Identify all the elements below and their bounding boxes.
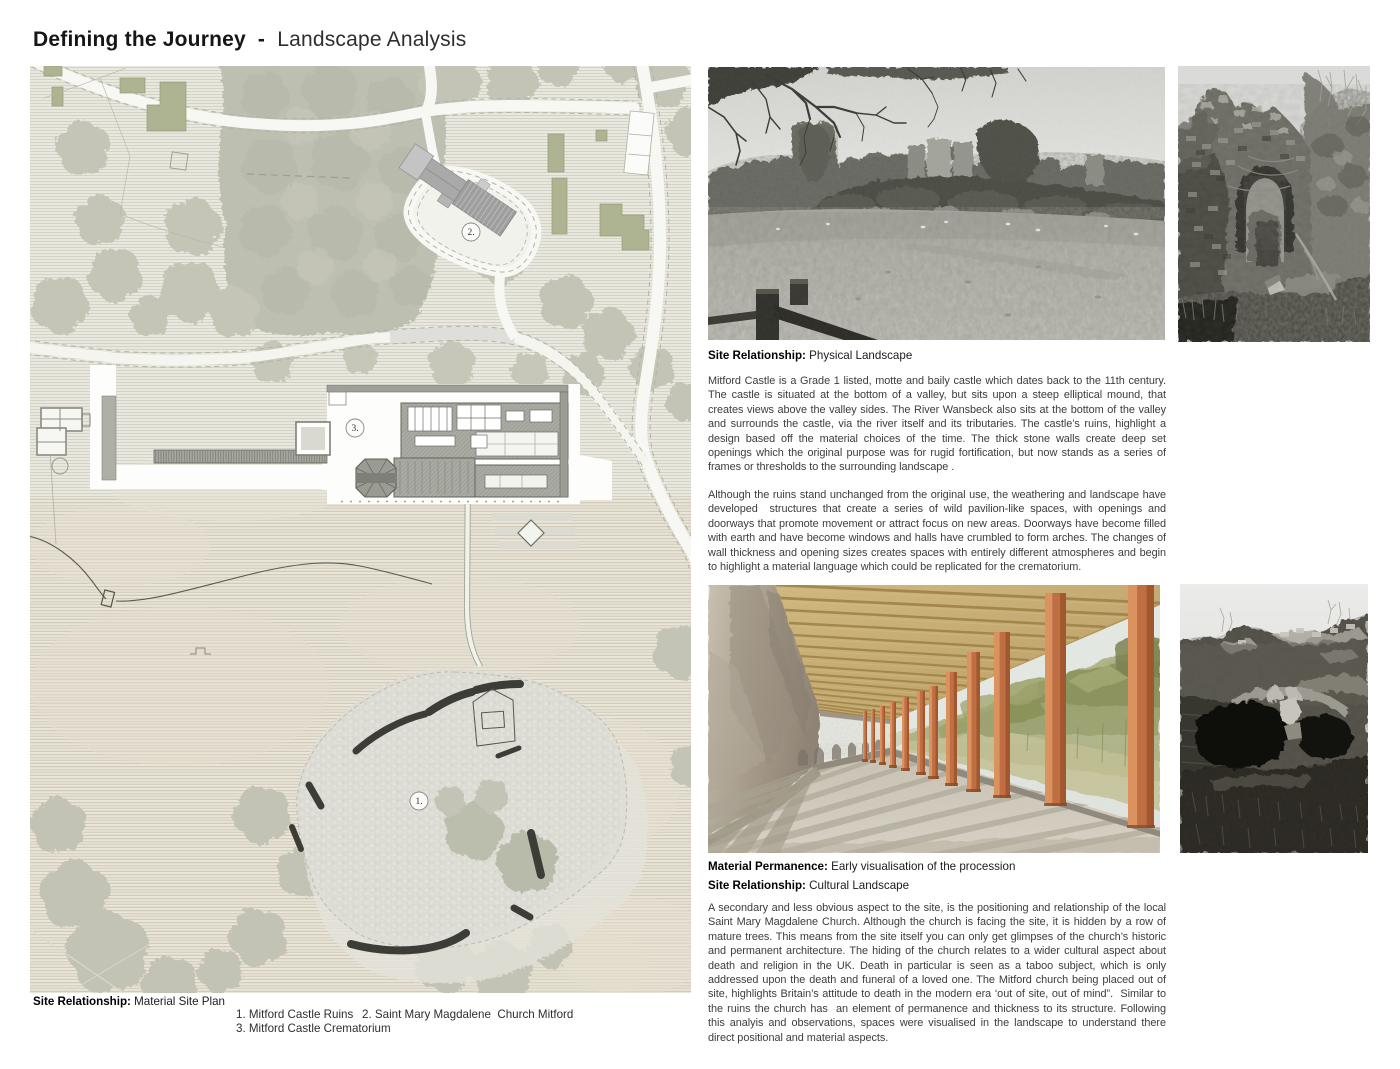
svg-text:2.: 2. [467,228,474,238]
svg-text:3.: 3. [351,424,358,434]
svg-text:1.: 1. [415,797,422,807]
